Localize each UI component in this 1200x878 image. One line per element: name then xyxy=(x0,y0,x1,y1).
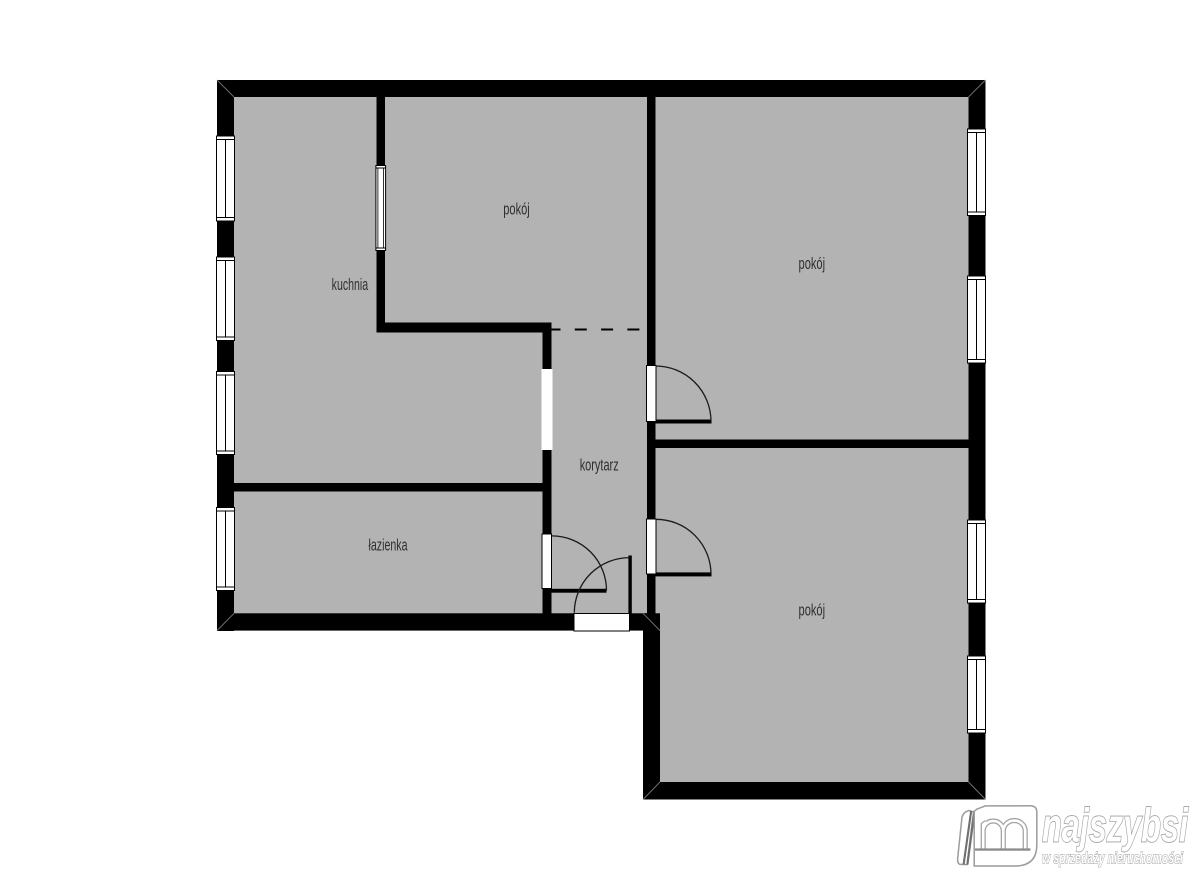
svg-text:korytarz: korytarz xyxy=(580,456,619,475)
svg-text:kuchnia: kuchnia xyxy=(332,275,369,294)
svg-text:pokój: pokój xyxy=(799,600,826,619)
svg-text:najszybsi: najszybsi xyxy=(1042,799,1189,852)
svg-text:pokój: pokój xyxy=(503,199,530,218)
svg-text:pokój: pokój xyxy=(799,254,826,273)
svg-text:łazienka: łazienka xyxy=(369,536,408,555)
svg-text:w sprzedaży nieruchomości: w sprzedaży nieruchomości xyxy=(1042,849,1184,868)
